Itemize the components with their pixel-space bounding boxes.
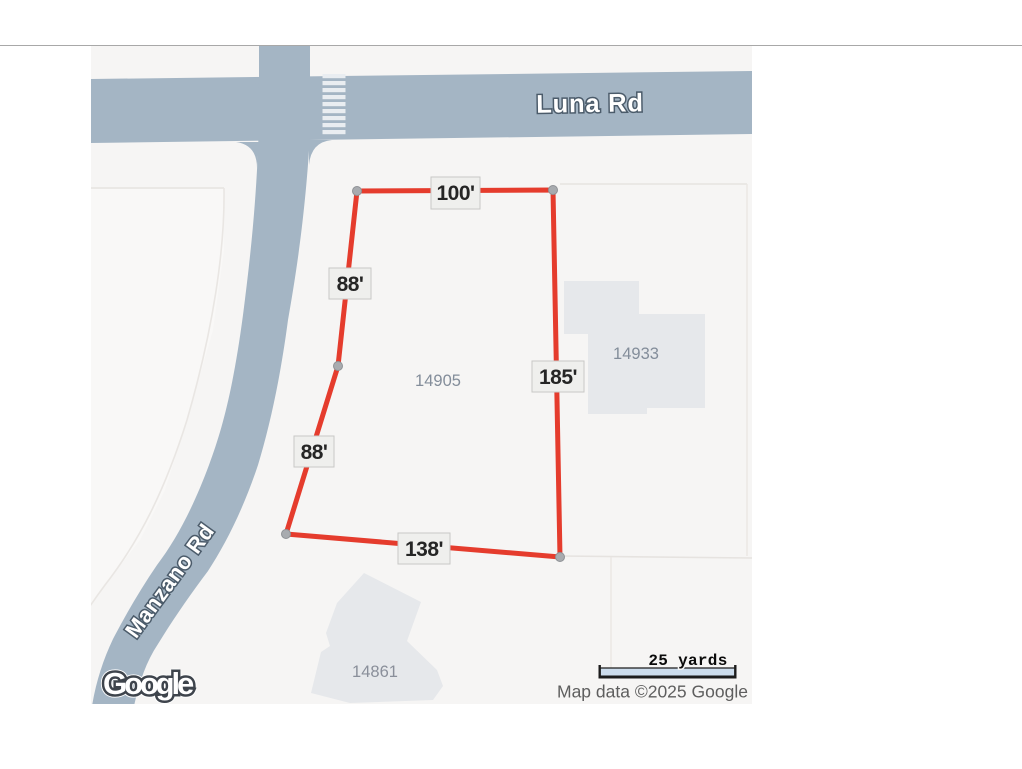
svg-text:14933: 14933 (613, 345, 659, 363)
svg-text:185': 185' (539, 366, 577, 389)
svg-text:88': 88' (337, 273, 364, 296)
svg-text:25 yards: 25 yards (648, 652, 727, 670)
svg-text:138': 138' (405, 538, 443, 561)
svg-text:Google: Google (103, 666, 194, 701)
svg-text:100': 100' (436, 182, 474, 205)
svg-text:Luna Rd: Luna Rd (536, 89, 644, 118)
svg-text:14905: 14905 (415, 372, 461, 390)
svg-text:14861: 14861 (352, 663, 398, 681)
svg-text:Map data ©2025 Google: Map data ©2025 Google (557, 682, 748, 702)
svg-text:88': 88' (301, 441, 328, 464)
